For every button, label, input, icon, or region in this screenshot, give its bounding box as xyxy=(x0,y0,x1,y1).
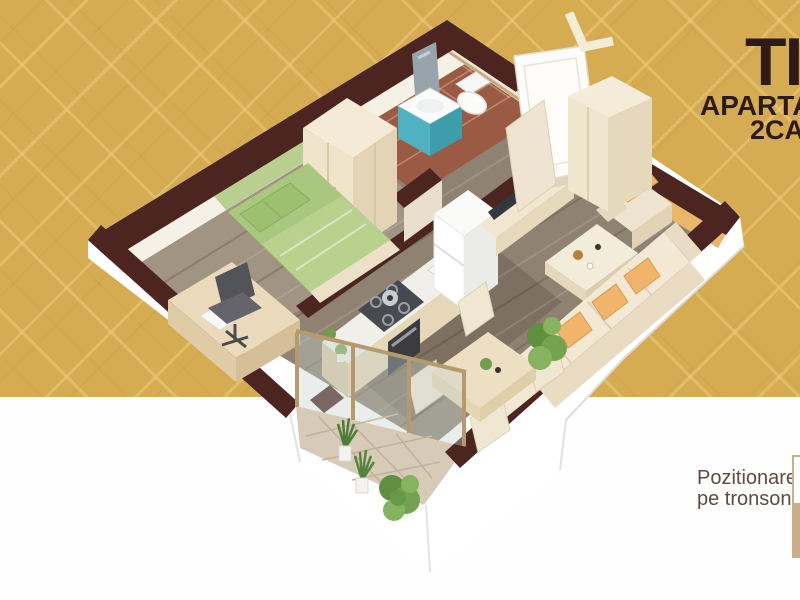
tronson-solid-block xyxy=(792,505,800,558)
pozitionare-label: Pozitionare pe tronson xyxy=(697,468,797,510)
tronson-outline-block xyxy=(792,455,800,505)
pozitionare-line1: Pozitionare xyxy=(697,468,797,489)
hall-cabinet xyxy=(568,76,652,212)
subtitle-2camere: 2CAM xyxy=(750,117,800,144)
flyer-canvas: TIP APARTAM 2CAM Pozitionare pe tronson xyxy=(0,0,800,600)
pozitionare-line2: pe tronson xyxy=(697,489,797,510)
apartment-floorplan-render xyxy=(0,0,800,600)
entrance-chevron-arrow xyxy=(569,13,613,47)
page-title: TIP xyxy=(745,28,800,96)
